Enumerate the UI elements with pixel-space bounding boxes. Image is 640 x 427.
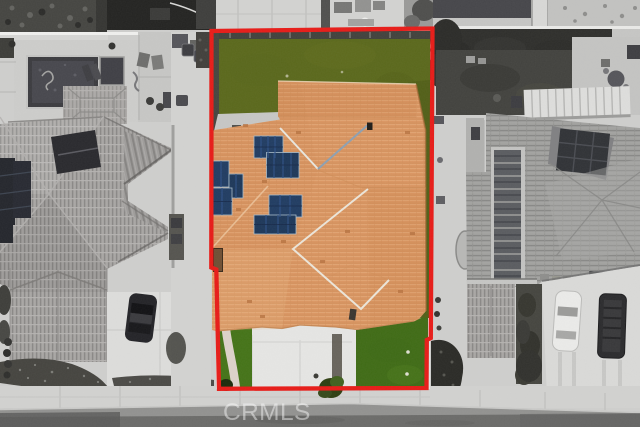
svg-text:CRMLS: CRMLS [223,399,311,426]
